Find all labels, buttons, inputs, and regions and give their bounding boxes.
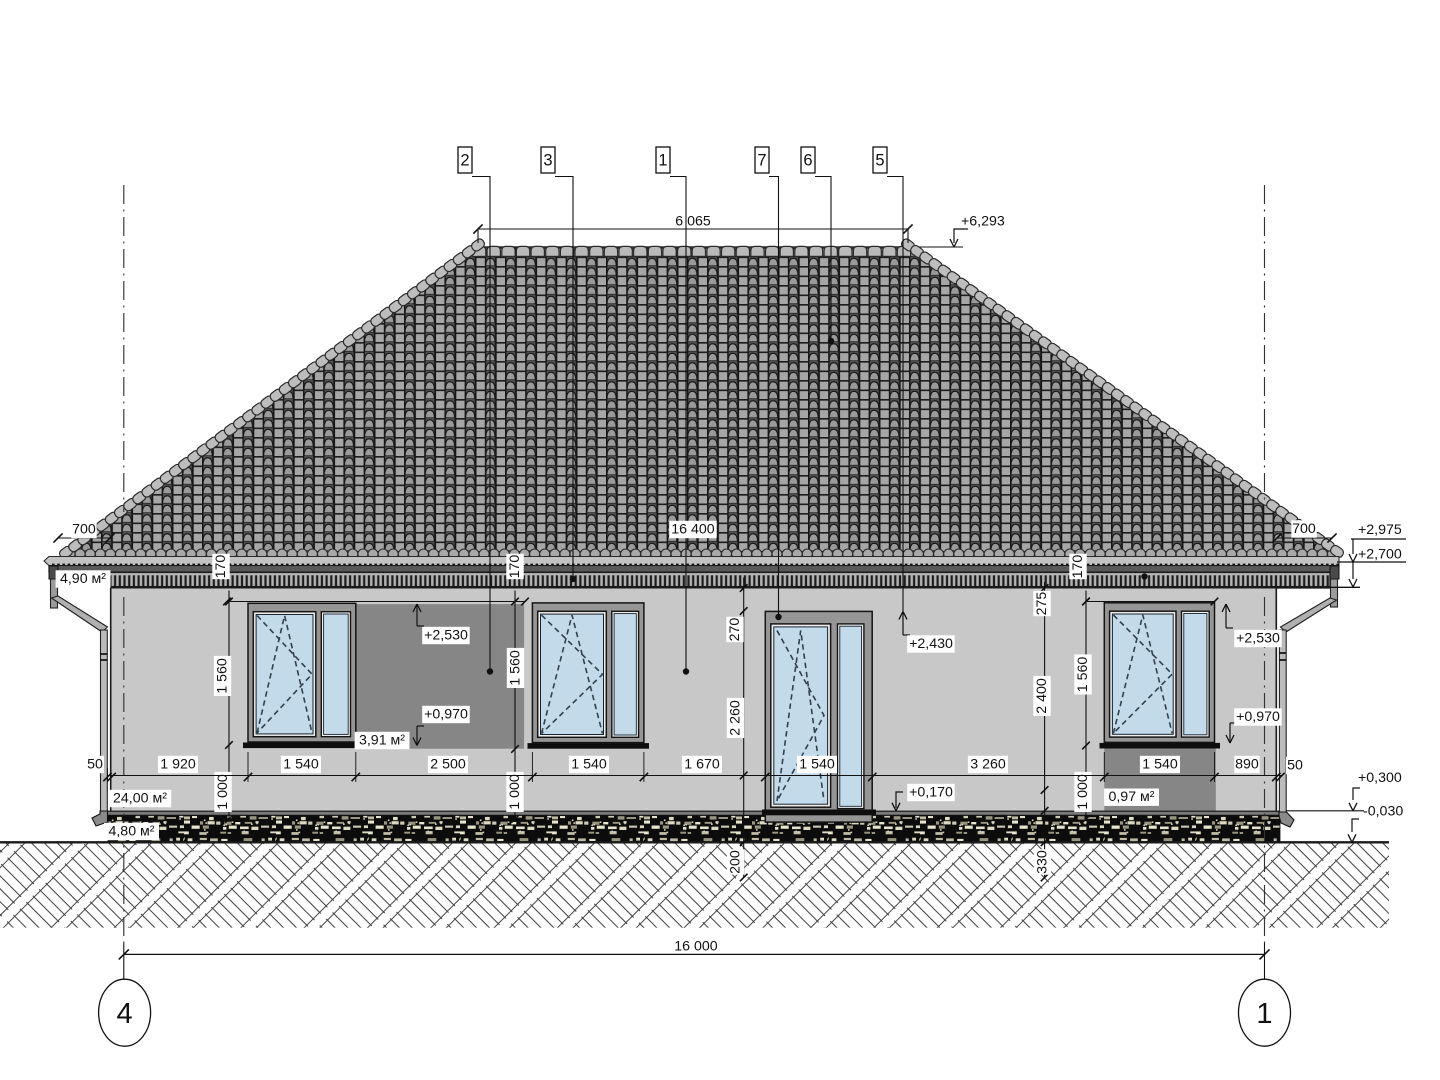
svg-text:+0,300: +0,300 [1358, 770, 1402, 786]
svg-text:4: 4 [117, 998, 133, 1030]
svg-text:0,97 м²: 0,97 м² [1108, 789, 1154, 805]
svg-text:5: 5 [875, 152, 884, 170]
svg-text:1 000: 1 000 [507, 774, 523, 810]
svg-text:2 500: 2 500 [430, 757, 466, 773]
svg-text:+6,293: +6,293 [961, 214, 1005, 230]
svg-text:1 560: 1 560 [508, 650, 524, 686]
svg-text:-0,030: -0,030 [1363, 804, 1403, 820]
svg-text:170: 170 [1070, 555, 1086, 579]
svg-text:1 000: 1 000 [1075, 774, 1091, 810]
svg-text:2: 2 [460, 152, 469, 170]
svg-text:200: 200 [728, 850, 744, 874]
svg-text:1: 1 [1256, 998, 1272, 1030]
svg-text:+2,530: +2,530 [1236, 631, 1280, 647]
svg-text:1 920: 1 920 [160, 757, 196, 773]
svg-text:270: 270 [727, 618, 743, 642]
svg-text:16 000: 16 000 [674, 939, 718, 955]
svg-text:330: 330 [1035, 850, 1051, 874]
svg-text:1 540: 1 540 [283, 757, 319, 773]
svg-text:+2,700: +2,700 [1358, 547, 1402, 563]
svg-text:1 540: 1 540 [1142, 757, 1178, 773]
svg-text:6 065: 6 065 [675, 214, 711, 230]
svg-text:3: 3 [543, 152, 552, 170]
svg-text:2 400: 2 400 [1034, 678, 1050, 714]
svg-text:6: 6 [803, 152, 812, 170]
svg-text:3 260: 3 260 [970, 757, 1006, 773]
svg-text:50: 50 [1287, 758, 1303, 774]
svg-text:50: 50 [87, 757, 103, 773]
svg-text:1 670: 1 670 [684, 757, 720, 773]
svg-text:+2,530: +2,530 [424, 628, 468, 644]
svg-text:+2,430: +2,430 [909, 636, 953, 652]
svg-text:16 400: 16 400 [671, 522, 715, 538]
svg-text:700: 700 [1292, 521, 1316, 537]
svg-text:1 540: 1 540 [799, 757, 835, 773]
svg-text:+2,975: +2,975 [1358, 522, 1402, 538]
svg-text:2 260: 2 260 [728, 700, 744, 736]
svg-text:275: 275 [1034, 592, 1050, 616]
svg-text:890: 890 [1235, 757, 1259, 773]
svg-text:1 000: 1 000 [215, 774, 231, 810]
svg-text:4,80 м²: 4,80 м² [108, 824, 154, 840]
svg-text:24,00 м²: 24,00 м² [113, 791, 167, 807]
svg-text:1 540: 1 540 [571, 757, 607, 773]
svg-text:1 560: 1 560 [215, 658, 231, 694]
svg-text:700: 700 [72, 522, 96, 538]
svg-text:+0,970: +0,970 [424, 707, 468, 723]
svg-text:3,91 м²: 3,91 м² [359, 733, 405, 749]
svg-text:1: 1 [658, 152, 667, 170]
svg-text:7: 7 [757, 152, 766, 170]
svg-text:170: 170 [213, 555, 229, 579]
svg-text:1 560: 1 560 [1075, 657, 1091, 693]
svg-text:170: 170 [507, 555, 523, 579]
svg-text:+0,170: +0,170 [909, 785, 953, 801]
svg-text:4,90 м²: 4,90 м² [60, 571, 106, 587]
svg-text:+0,970: +0,970 [1236, 709, 1280, 725]
